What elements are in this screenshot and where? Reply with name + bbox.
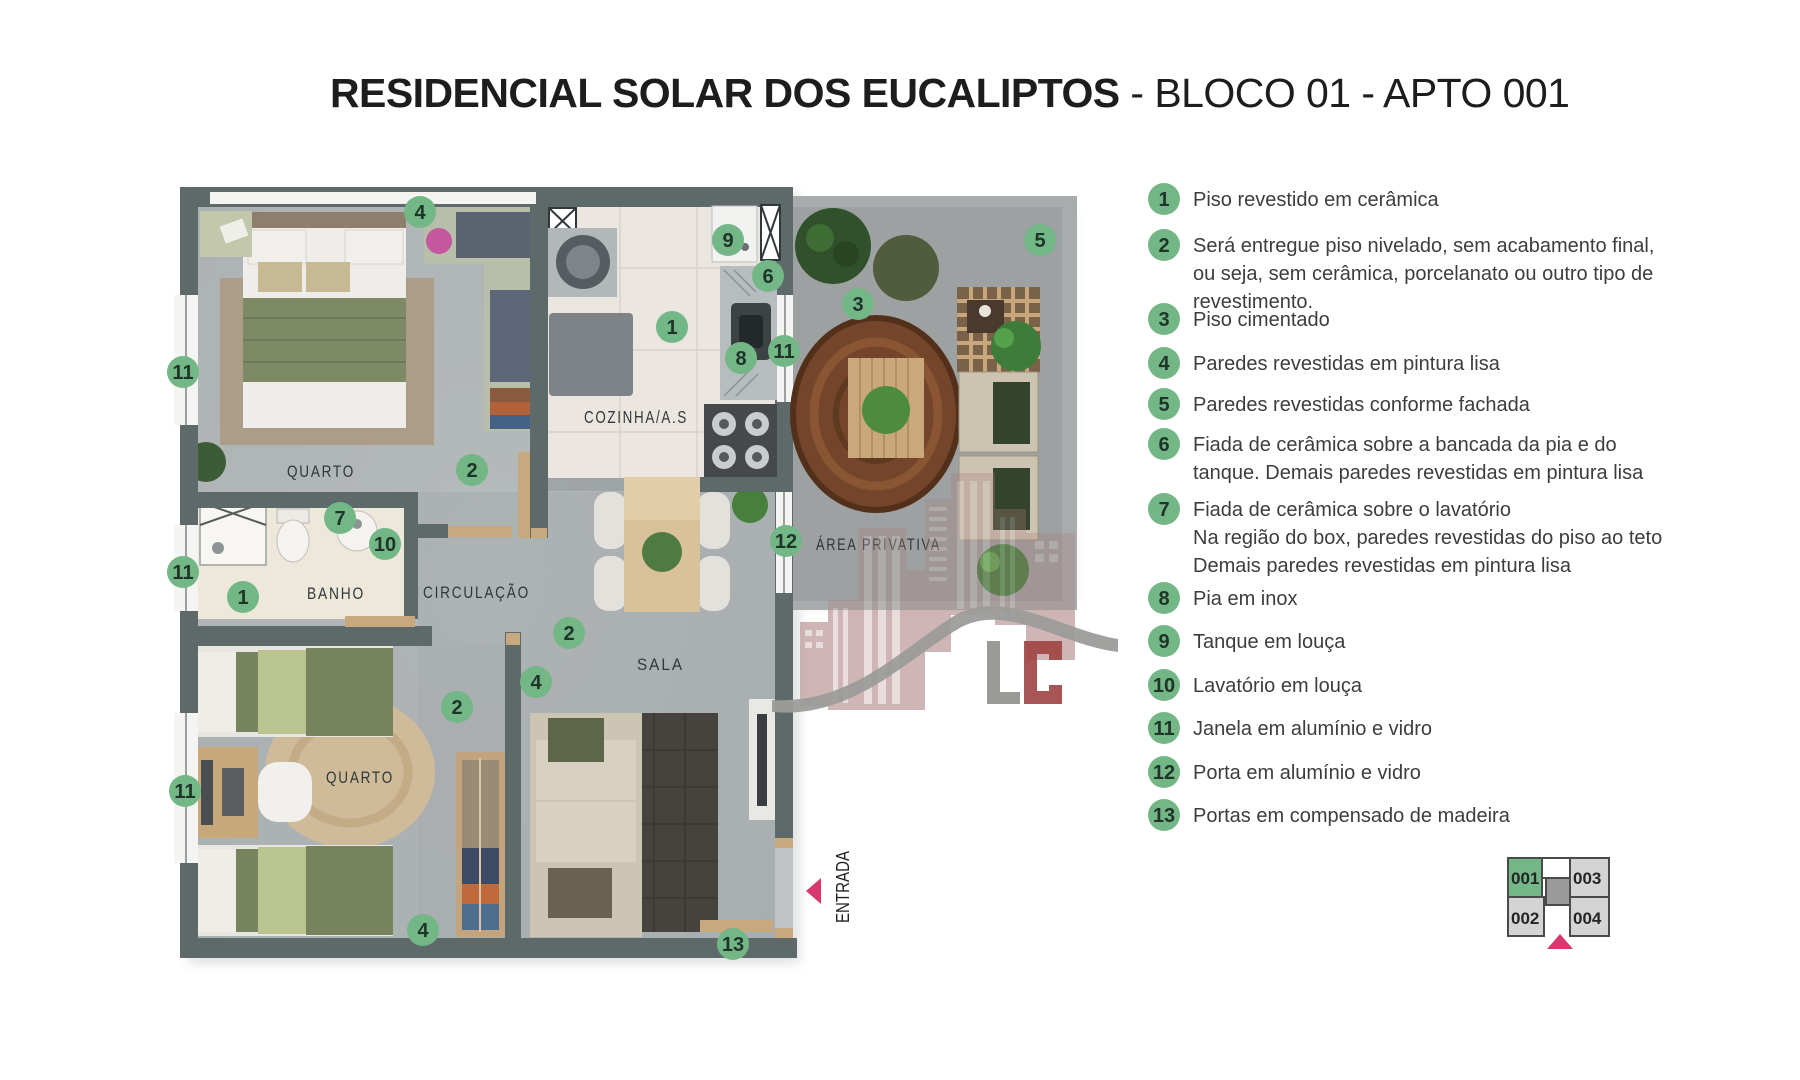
svg-text:7: 7 (1158, 499, 1169, 521)
svg-text:Paredes revestidas conforme fa: Paredes revestidas conforme fachada (1193, 394, 1531, 416)
svg-text:1: 1 (237, 587, 248, 609)
svg-text:003: 003 (1573, 869, 1601, 888)
svg-text:4: 4 (1158, 353, 1170, 375)
svg-text:11: 11 (773, 341, 794, 363)
svg-text:10: 10 (374, 534, 396, 556)
svg-text:9: 9 (722, 230, 733, 252)
svg-text:13: 13 (722, 934, 744, 956)
svg-text:002: 002 (1511, 909, 1539, 928)
svg-text:Paredes revestidas em pintura: Paredes revestidas em pintura lisa (1193, 353, 1501, 375)
svg-text:Fiada de cerâmica sobre o lava: Fiada de cerâmica sobre o lavatório (1193, 499, 1511, 521)
svg-text:Piso revestido em cerâmica: Piso revestido em cerâmica (1193, 189, 1440, 211)
svg-text:2: 2 (563, 623, 574, 645)
svg-text:11: 11 (174, 781, 195, 803)
svg-text:SALA: SALA (637, 655, 684, 674)
svg-text:2: 2 (451, 697, 462, 719)
svg-text:10: 10 (1153, 675, 1175, 697)
svg-text:6: 6 (1158, 434, 1169, 456)
svg-text:Lavatório em louça: Lavatório em louça (1193, 675, 1363, 697)
svg-text:1: 1 (1158, 189, 1169, 211)
svg-text:Demais paredes revestidas em p: Demais paredes revestidas em pintura lis… (1193, 555, 1572, 577)
svg-text:Fiada de cerâmica sobre a banc: Fiada de cerâmica sobre a bancada da pia… (1193, 434, 1617, 456)
svg-text:12: 12 (1153, 762, 1175, 784)
svg-text:11: 11 (172, 362, 193, 384)
svg-text:3: 3 (1158, 309, 1169, 331)
svg-text:Será entregue piso nivelado, s: Será entregue piso nivelado, sem acabame… (1193, 235, 1654, 257)
svg-text:5: 5 (1158, 394, 1169, 416)
svg-text:9: 9 (1158, 631, 1169, 653)
svg-text:6: 6 (762, 266, 773, 288)
svg-text:Tanque em louça: Tanque em louça (1193, 631, 1346, 653)
svg-text:ou seja, sem cerâmica, porcela: ou seja, sem cerâmica, porcelanato ou ou… (1193, 263, 1653, 285)
svg-text:11: 11 (1153, 718, 1174, 740)
svg-text:004: 004 (1573, 909, 1602, 928)
svg-text:tanque. Demais paredes revesti: tanque. Demais paredes revestidas em pin… (1193, 462, 1644, 484)
svg-text:4: 4 (417, 920, 429, 942)
svg-text:ENTRADA: ENTRADA (833, 851, 853, 923)
svg-text:Na região do box, paredes reve: Na região do box, paredes revestidas do … (1193, 527, 1662, 549)
svg-text:CIRCULAÇÃO: CIRCULAÇÃO (423, 583, 530, 602)
svg-text:Porta em alumínio e vidro: Porta em alumínio e vidro (1193, 762, 1421, 784)
svg-text:1: 1 (666, 317, 677, 339)
svg-text:RESIDENCIAL SOLAR DOS EUCALIPT: RESIDENCIAL SOLAR DOS EUCALIPTOS - BLOCO… (330, 70, 1569, 116)
svg-text:001: 001 (1511, 869, 1539, 888)
svg-text:4: 4 (414, 202, 426, 224)
svg-text:11: 11 (172, 562, 193, 584)
svg-text:3: 3 (852, 294, 863, 316)
svg-text:Portas em compensado de madeir: Portas em compensado de madeira (1193, 805, 1511, 827)
svg-text:7: 7 (334, 508, 345, 530)
svg-text:4: 4 (530, 672, 542, 694)
svg-text:2: 2 (466, 460, 477, 482)
svg-text:COZINHA/A.S: COZINHA/A.S (584, 407, 688, 427)
svg-text:Janela em alumínio e vidro: Janela em alumínio e vidro (1193, 718, 1432, 740)
svg-text:2: 2 (1158, 235, 1169, 257)
svg-text:8: 8 (735, 348, 746, 370)
svg-text:Piso cimentado: Piso cimentado (1193, 309, 1330, 331)
svg-text:BANHO: BANHO (307, 584, 365, 603)
svg-text:13: 13 (1153, 805, 1175, 827)
svg-text:Pia em inox: Pia em inox (1193, 588, 1298, 610)
svg-text:5: 5 (1034, 230, 1045, 252)
svg-text:QUARTO: QUARTO (326, 768, 394, 787)
svg-text:12: 12 (775, 531, 797, 553)
svg-text:8: 8 (1158, 588, 1169, 610)
svg-text:QUARTO: QUARTO (287, 462, 355, 481)
